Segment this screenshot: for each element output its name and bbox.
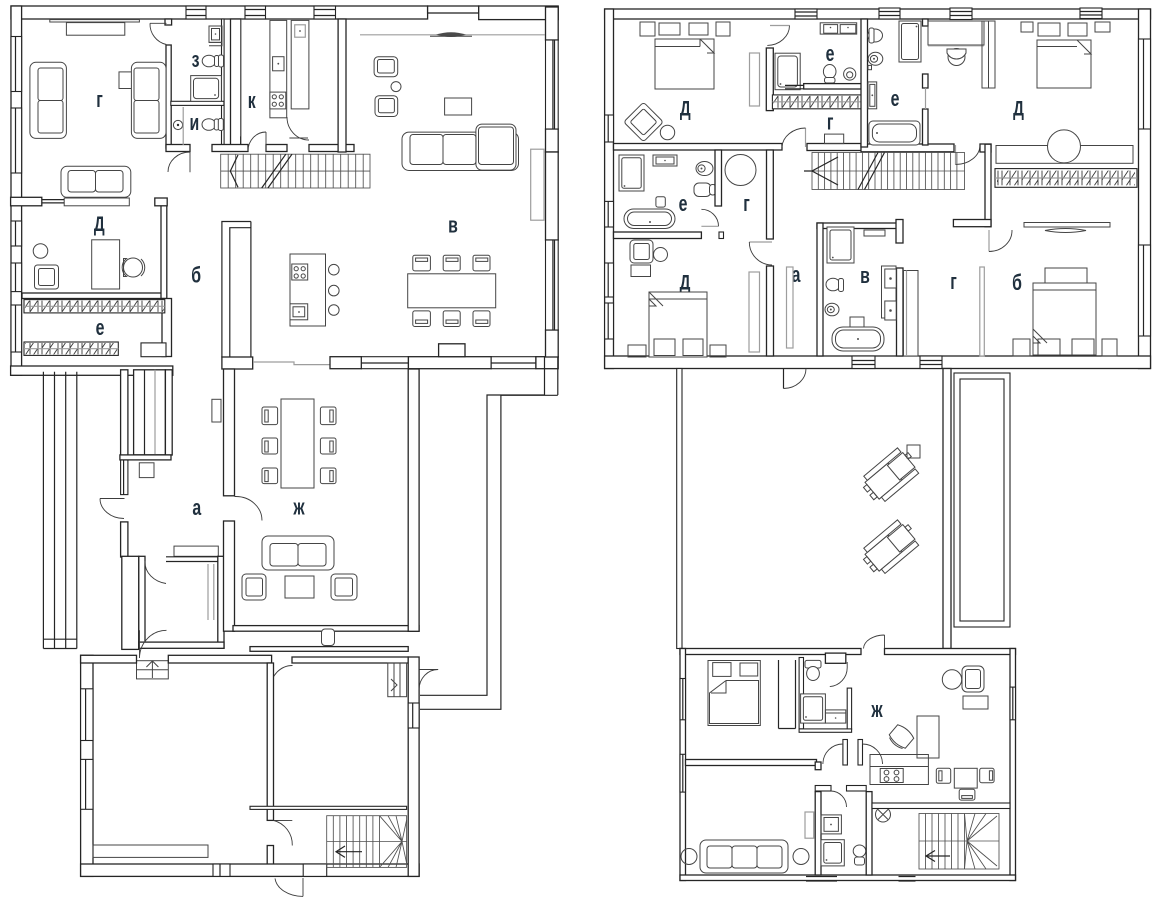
svg-text:г: г [827, 111, 834, 135]
svg-text:е: е [679, 193, 688, 217]
svg-text:е: е [891, 88, 900, 112]
svg-text:б: б [1012, 272, 1022, 296]
svg-text:ж: ж [293, 496, 305, 520]
svg-text:Д: Д [680, 96, 691, 120]
svg-text:г: г [950, 271, 957, 295]
svg-text:г: г [743, 193, 750, 217]
svg-text:к: к [248, 90, 256, 114]
svg-text:ж: ж [871, 699, 883, 723]
svg-text:и: и [190, 112, 200, 136]
svg-text:Д: Д [94, 211, 105, 235]
svg-text:е: е [826, 43, 835, 67]
svg-text:з: з [192, 49, 200, 73]
svg-text:Д: Д [1013, 96, 1024, 120]
svg-text:Д: Д [680, 270, 691, 294]
svg-text:б: б [191, 264, 201, 288]
svg-text:г: г [96, 89, 103, 113]
svg-text:в: в [448, 214, 458, 238]
svg-text:в: в [860, 265, 870, 289]
svg-text:е: е [96, 317, 105, 341]
svg-text:а: а [192, 497, 201, 521]
